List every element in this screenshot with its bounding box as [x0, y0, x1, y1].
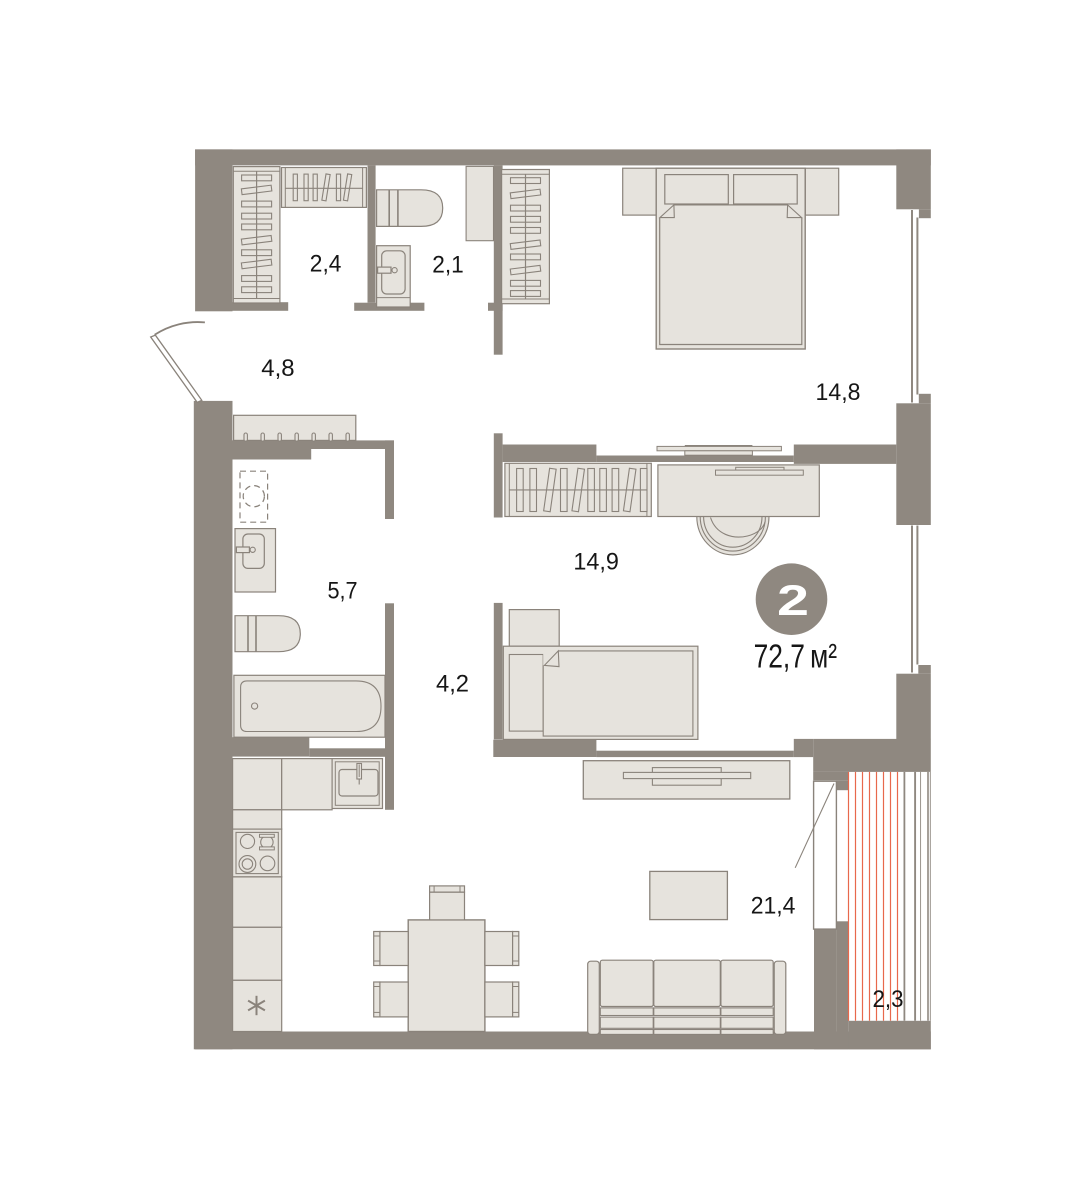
svg-text:14,8: 14,8: [816, 379, 861, 406]
svg-text:4,2: 4,2: [436, 670, 469, 697]
svg-text:2,1: 2,1: [432, 251, 464, 278]
svg-text:21,4: 21,4: [751, 892, 796, 919]
svg-text:4,8: 4,8: [261, 355, 294, 382]
svg-text:14,9: 14,9: [573, 549, 619, 576]
svg-text:2,3: 2,3: [873, 986, 904, 1013]
svg-text:72,7 м²: 72,7 м²: [754, 639, 838, 676]
svg-text:5,7: 5,7: [327, 577, 357, 604]
svg-text:2,4: 2,4: [310, 251, 342, 278]
svg-text:2: 2: [777, 577, 809, 625]
